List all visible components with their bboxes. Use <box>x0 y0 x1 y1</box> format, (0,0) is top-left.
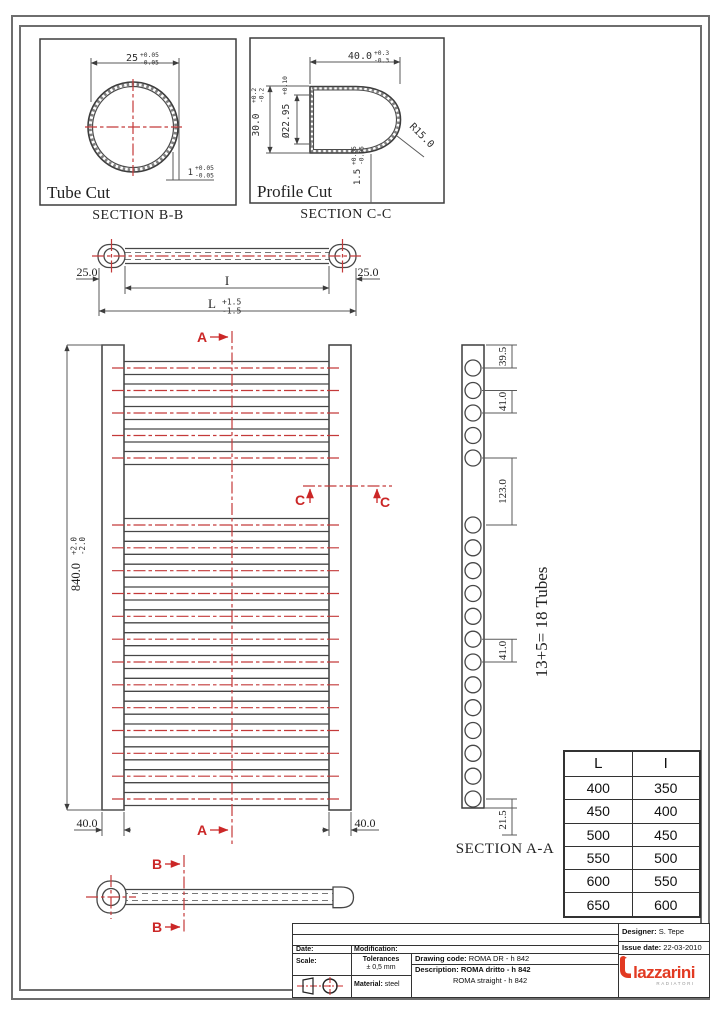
detail-b-title: Tube Cut <box>47 183 110 202</box>
dim-overall-length: L <box>208 296 216 311</box>
date-label: Date: <box>296 946 314 954</box>
description-field: Description: ROMA dritto - h 842 <box>415 966 531 974</box>
section-c-marker-left: C <box>295 492 305 508</box>
description-field-2: ROMA straight - h 842 <box>453 977 527 985</box>
table-cell: 650 <box>564 893 632 917</box>
issue-date-field: Issue date: 22-03-2010 <box>622 944 702 952</box>
table-row: 450 400 <box>564 800 700 823</box>
dim-wall-value: 1 <box>188 168 193 178</box>
dim-inner-length: I <box>225 273 229 288</box>
dim-od-minus: -0.05 <box>140 60 159 67</box>
dim-top-offset: 39.5 <box>497 346 509 366</box>
section-b-marker-top: B <box>152 856 162 872</box>
dim-wall-plus: +0.05 <box>195 165 214 172</box>
scale-label: Scale: <box>296 958 317 966</box>
front-tube-centerlines <box>112 368 342 799</box>
front-view: 840.0 +2.0 -2.0 40.0 40.0 A A C C <box>67 329 392 846</box>
table-cell: 400 <box>632 800 700 823</box>
dim-height-plus: +0.2 <box>251 88 258 103</box>
dim-bottom-offset: 21.5 <box>497 810 509 830</box>
table-row: 550 500 <box>564 846 700 869</box>
table-cell: 600 <box>564 870 632 893</box>
logo-subtext: RADIATORI <box>633 981 695 986</box>
dim-foot-right: 40.0 <box>355 816 376 830</box>
dim-width-value: 40.0 <box>348 51 372 62</box>
dim-height-minus: -0.2 <box>259 88 266 103</box>
tube-count-note: 13+5= 18 Tubes <box>532 567 551 678</box>
table-cell: 500 <box>564 823 632 846</box>
section-aa-label: SECTION A-A <box>456 841 554 857</box>
table-cell: 450 <box>564 800 632 823</box>
dim-end-right: 25.0 <box>358 265 379 279</box>
lazzarini-logo-icon <box>619 955 632 979</box>
tolerances-value: ± 0,5 mm <box>351 964 411 972</box>
dim-gap: 123.0 <box>497 479 509 504</box>
detail-c-title: Profile Cut <box>257 182 332 201</box>
section-a-marker-bottom: A <box>197 822 207 838</box>
title-block: Date: Modification: Scale: Tolerances ± … <box>292 923 710 998</box>
dim-pitch-2: 41.0 <box>497 640 509 660</box>
dim-profile-wall-plus: +0.05 <box>351 146 358 165</box>
table-row: 400 350 <box>564 776 700 799</box>
dim-od-value: 25 <box>126 53 138 64</box>
dim-height-840: 840.0 <box>69 563 83 591</box>
dim-width-minus: -0.3 <box>374 58 389 65</box>
section-cc-label: SECTION C-C <box>300 207 391 222</box>
table-row: 500 450 <box>564 823 700 846</box>
size-table-header-L: L <box>564 751 632 776</box>
dim-height-840-minus: -2.0 <box>78 536 87 555</box>
table-cell: 450 <box>632 823 700 846</box>
detail-profile-cut: 40.0 +0.3 -0.3 30.0 +0.2 -0.2 Ø22.95 +0.… <box>250 38 444 222</box>
right-rail <box>329 345 351 810</box>
section-c-marker-right: C <box>380 494 390 510</box>
technical-drawing-page: 25 +0.05 -0.05 1 +0.05 -0.05 Tube Cut SE… <box>0 0 720 1018</box>
dim-profile-wall-value: 1.5 <box>353 169 363 185</box>
table-cell: 550 <box>564 846 632 869</box>
dim-od-plus: +0.05 <box>140 52 159 59</box>
dim-height-value: 30.0 <box>251 113 262 136</box>
dim-end-left: 25.0 <box>77 265 98 279</box>
detail-tube-cut: 25 +0.05 -0.05 1 +0.05 -0.05 Tube Cut SE… <box>40 39 236 223</box>
projection-symbol-icon <box>297 977 347 995</box>
section-b-marker-bottom: B <box>152 919 162 935</box>
dim-width-plus: +0.3 <box>374 50 389 57</box>
size-table-header-I: I <box>632 751 700 776</box>
dim-inner-dia-plus: +0.10 <box>282 76 289 95</box>
designer-field: Designer: S. Tepe <box>622 928 684 936</box>
dim-foot-left: 40.0 <box>77 816 98 830</box>
table-cell: 550 <box>632 870 700 893</box>
section-a-view: 39.5 41.0 123.0 41.0 21.5 13+5= 18 Tubes… <box>456 345 554 857</box>
section-a-marker-top: A <box>197 329 207 345</box>
table-row: 650 600 <box>564 893 700 917</box>
dim-pitch: 41.0 <box>497 391 509 411</box>
table-cell: 350 <box>632 776 700 799</box>
table-cell: 400 <box>564 776 632 799</box>
dim-wall-minus: -0.05 <box>195 173 214 180</box>
front-tubes <box>125 362 330 806</box>
dim-profile-wall-minus: -0.05 <box>359 146 366 165</box>
section-bb-label: SECTION B-B <box>92 208 183 223</box>
dim-inner-dia-value: Ø22.95 <box>281 104 292 138</box>
table-row: 600 550 <box>564 870 700 893</box>
size-table: L I 400 350 450 400 500 450 550 500 600 … <box>563 750 701 918</box>
drawing-code-field: Drawing code: ROMA DR - h 842 <box>415 955 529 963</box>
logo-text: lazzarini <box>633 965 695 981</box>
table-cell: 600 <box>632 893 700 917</box>
tolerances-label: Tolerances <box>351 956 411 964</box>
side-right-cap <box>333 887 354 908</box>
plan-view: 25.0 25.0 I L +1.5 -1.5 <box>76 239 380 316</box>
dim-overall-minus: -1.5 <box>222 307 241 316</box>
dim-overall-plus: +1.5 <box>222 298 241 307</box>
table-cell: 500 <box>632 846 700 869</box>
modification-label: Modification: <box>354 946 398 954</box>
left-rail <box>102 345 124 810</box>
material-field: Material: steel <box>354 981 400 989</box>
company-logo: lazzarini RADIATORI <box>619 955 709 996</box>
